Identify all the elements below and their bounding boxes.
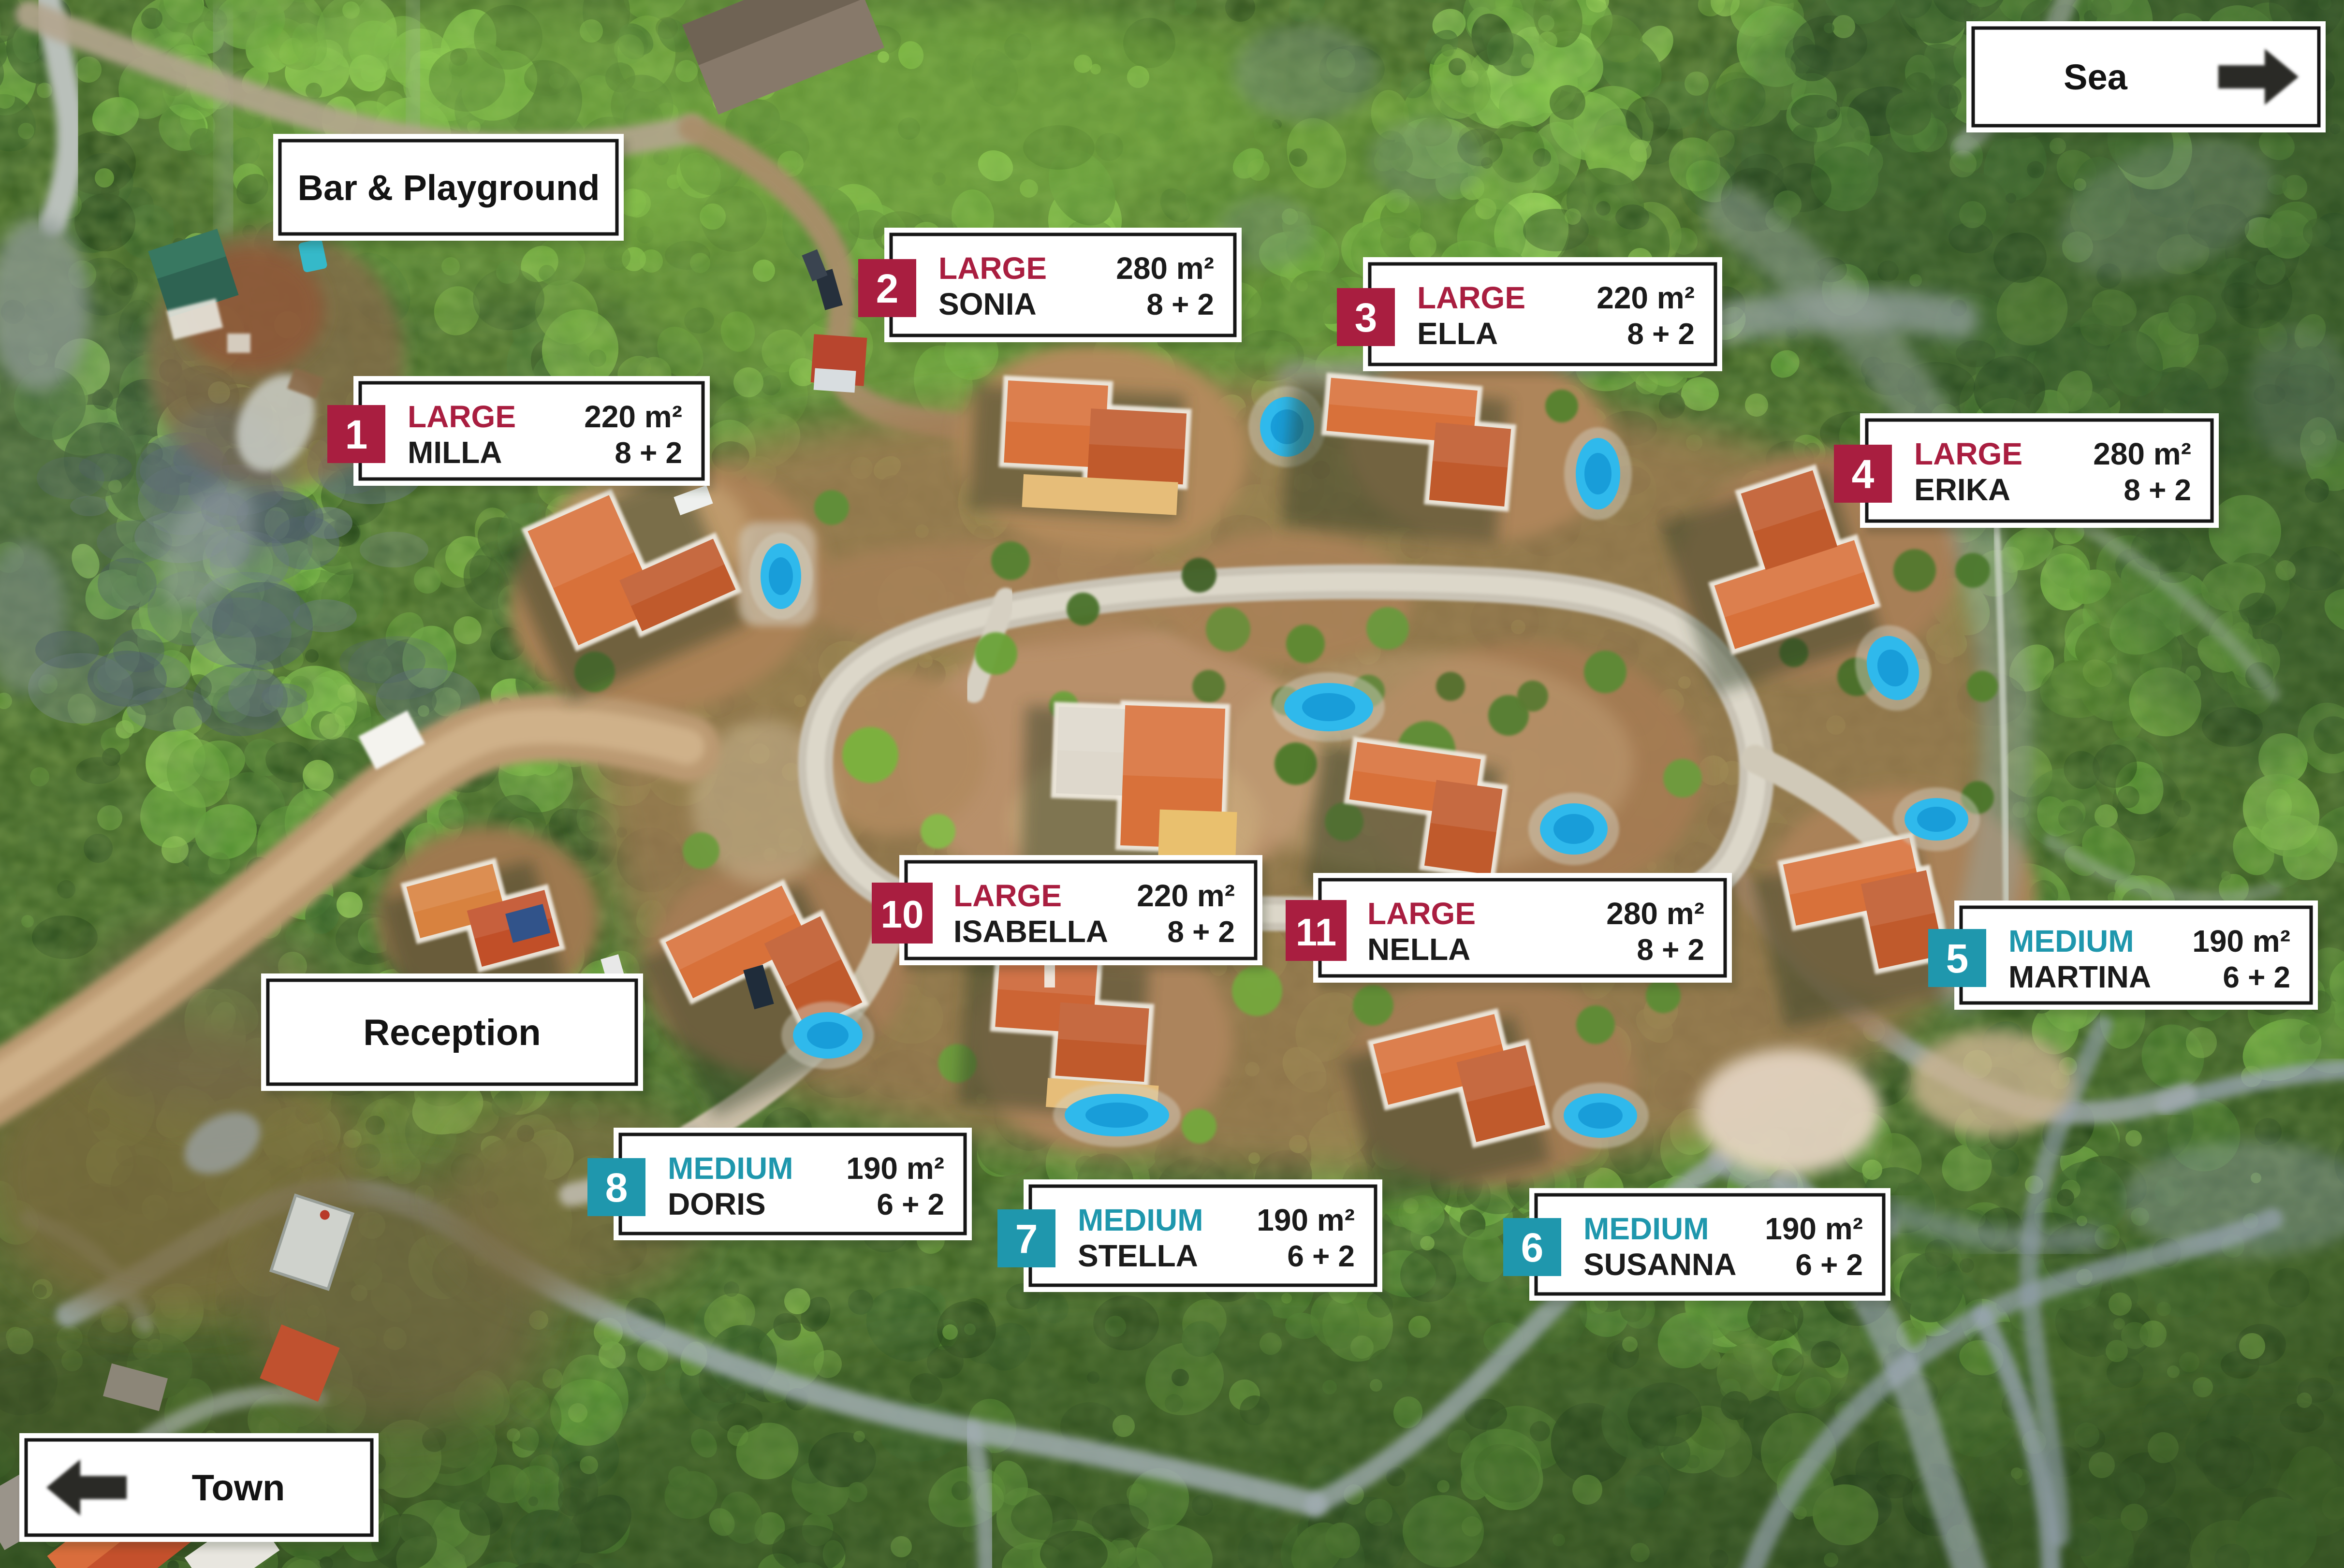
svg-text:6 + 2: 6 + 2 bbox=[1795, 1249, 1863, 1282]
svg-text:280 m²: 280 m² bbox=[1606, 896, 1704, 931]
svg-text:LARGE: LARGE bbox=[408, 399, 516, 434]
svg-text:Reception: Reception bbox=[363, 1012, 541, 1053]
svg-text:220 m²: 220 m² bbox=[1597, 280, 1695, 315]
svg-text:190 m²: 190 m² bbox=[1257, 1203, 1355, 1237]
svg-text:8 + 2: 8 + 2 bbox=[1146, 288, 1214, 321]
svg-text:5: 5 bbox=[1946, 936, 1969, 981]
svg-text:6 + 2: 6 + 2 bbox=[2223, 961, 2290, 994]
svg-text:MEDIUM: MEDIUM bbox=[1583, 1211, 1709, 1246]
svg-text:MEDIUM: MEDIUM bbox=[1078, 1203, 1203, 1237]
svg-text:190 m²: 190 m² bbox=[1765, 1211, 1863, 1246]
svg-text:220 m²: 220 m² bbox=[1137, 878, 1235, 913]
svg-text:LARGE: LARGE bbox=[938, 251, 1047, 286]
svg-text:8 + 2: 8 + 2 bbox=[2124, 474, 2191, 507]
svg-text:LARGE: LARGE bbox=[1367, 896, 1476, 931]
svg-text:ELLA: ELLA bbox=[1417, 316, 1498, 351]
svg-text:8: 8 bbox=[605, 1165, 628, 1210]
svg-text:DORIS: DORIS bbox=[668, 1187, 766, 1221]
svg-text:190 m²: 190 m² bbox=[2192, 924, 2290, 958]
svg-text:280 m²: 280 m² bbox=[2093, 436, 2191, 471]
svg-text:6: 6 bbox=[1521, 1225, 1544, 1270]
svg-text:7: 7 bbox=[1015, 1216, 1038, 1262]
svg-text:8 + 2: 8 + 2 bbox=[615, 436, 682, 470]
svg-text:LARGE: LARGE bbox=[953, 878, 1062, 913]
svg-text:220 m²: 220 m² bbox=[584, 399, 682, 434]
svg-text:190 m²: 190 m² bbox=[846, 1151, 944, 1186]
svg-text:11: 11 bbox=[1296, 911, 1337, 954]
svg-text:Sea: Sea bbox=[2064, 57, 2128, 97]
svg-text:2: 2 bbox=[876, 266, 899, 311]
svg-text:280 m²: 280 m² bbox=[1116, 251, 1214, 286]
svg-text:MILLA: MILLA bbox=[408, 435, 502, 470]
svg-text:SONIA: SONIA bbox=[938, 287, 1037, 321]
svg-text:ISABELLA: ISABELLA bbox=[953, 914, 1108, 949]
svg-text:SUSANNA: SUSANNA bbox=[1583, 1247, 1736, 1282]
svg-text:Bar & Playground: Bar & Playground bbox=[298, 168, 600, 208]
svg-text:STELLA: STELLA bbox=[1078, 1238, 1198, 1273]
svg-text:1: 1 bbox=[345, 412, 368, 457]
svg-text:ERIKA: ERIKA bbox=[1914, 472, 2010, 507]
svg-text:8 + 2: 8 + 2 bbox=[1167, 915, 1235, 949]
svg-text:6 + 2: 6 + 2 bbox=[877, 1188, 944, 1221]
svg-text:6 + 2: 6 + 2 bbox=[1287, 1240, 1355, 1273]
svg-text:NELLA: NELLA bbox=[1367, 932, 1470, 967]
svg-text:8 + 2: 8 + 2 bbox=[1637, 933, 1704, 967]
svg-text:4: 4 bbox=[1852, 451, 1875, 497]
svg-text:Town: Town bbox=[192, 1467, 285, 1509]
svg-text:LARGE: LARGE bbox=[1914, 436, 2022, 471]
svg-text:LARGE: LARGE bbox=[1417, 280, 1525, 315]
svg-text:MEDIUM: MEDIUM bbox=[2008, 924, 2134, 958]
svg-text:8 + 2: 8 + 2 bbox=[1627, 318, 1695, 351]
svg-text:10: 10 bbox=[881, 893, 924, 936]
svg-text:MARTINA: MARTINA bbox=[2008, 959, 2151, 994]
svg-text:MEDIUM: MEDIUM bbox=[668, 1151, 793, 1186]
svg-text:3: 3 bbox=[1355, 295, 1377, 340]
